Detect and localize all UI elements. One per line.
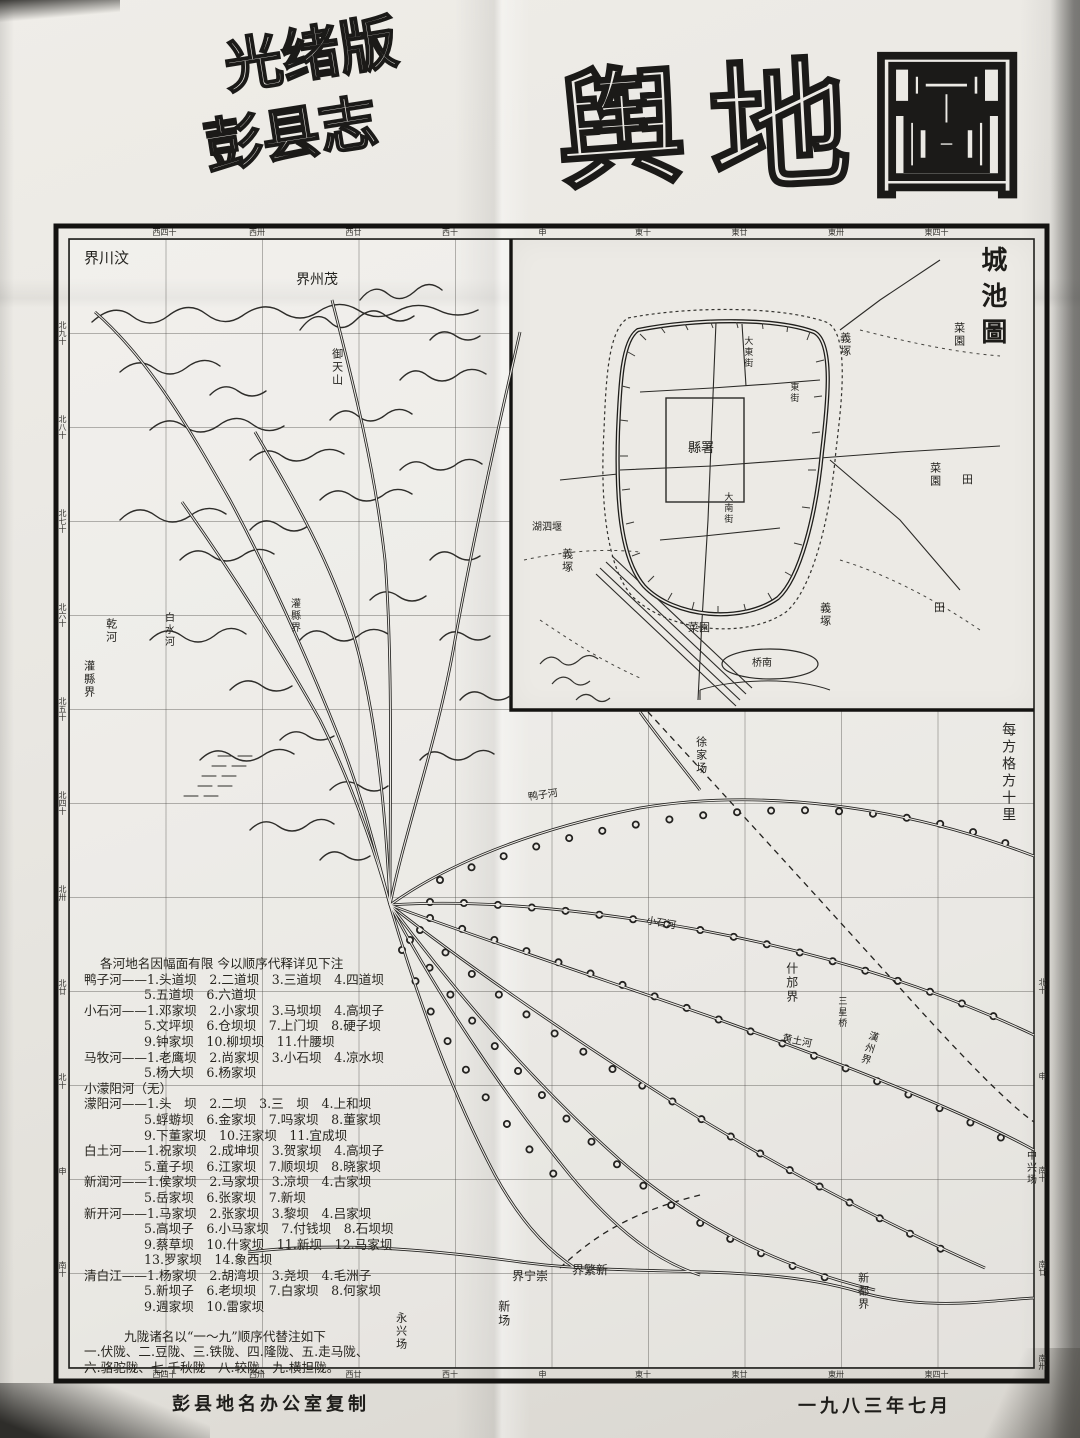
inset-label-dadongjie: 大東街 (742, 336, 752, 369)
river-name-legend: 各河地名因幅面有限 今以顺序代释详见下注 鸭子河——1.头道坝 2.二道坝 3.… (84, 956, 444, 1375)
grid-tick-label: 申 (1037, 1072, 1048, 1080)
settlement-dots (402, 810, 1020, 1285)
label-xinfan-border: 界繁新 (572, 1264, 608, 1278)
label-wenchuan-border: 界川汶 (84, 250, 129, 267)
inset-label-yamen: 縣署 (688, 442, 714, 457)
legend-line: 濛阳河——1.头 坝 2.二坝 3.三 坝 4.上和坝 (84, 1096, 444, 1112)
inset-label-dongjie: 東街 (788, 382, 798, 404)
grid-tick-label: 南十 (1037, 1166, 1048, 1182)
grid-tick-label: 西廿 (346, 227, 362, 238)
footer-publisher: 彭县地名办公室复制 (172, 1390, 370, 1416)
grid-tick-label: 東四十 (925, 1369, 949, 1380)
legend-line: 清白江——1.杨家坝 2.胡湾坝 3.尧坝 4.毛洲子 (84, 1268, 444, 1284)
inset-label-husiyan: 湖泗堰 (532, 522, 562, 534)
legend-line: 鸭子河——1.头道坝 2.二道坝 3.三道坝 4.四道坝 (84, 972, 444, 988)
legend-line: 9.下董家坝 10.汪家坝 11.宜成坝 (84, 1128, 444, 1144)
label-baishuihe: 白水河 (162, 612, 174, 648)
label-shifang-border: 什邡界 (784, 962, 798, 1004)
grid-tick-label: 北卅 (57, 885, 68, 901)
label-guanxian-border-1: 灌縣界 (82, 660, 95, 699)
label-xinchang: 新场 (496, 1300, 510, 1328)
grid-tick-label: 西四十 (153, 227, 177, 238)
grid-tick-label: 北十 (57, 1073, 68, 1089)
inset-label-yizhong-1: 義塚 (838, 332, 851, 358)
legend-line: 5.蜉蝣坝 6.金家坝 7.吗家坝 8.董家坝 (84, 1112, 444, 1128)
label-chongning-border: 界宁崇 (512, 1270, 548, 1284)
inset-frame (511, 239, 1034, 710)
legend-nine-long-line: 六.骆驼陇、七.千秋陇 八.较陇、九.横担陇。 (84, 1360, 444, 1376)
inset-label-caiyuan-2: 菜園 (928, 462, 941, 488)
inset-label-caiyuan-3: 菜園 (688, 622, 710, 635)
inset-label-tian-2: 田 (934, 602, 945, 615)
grid-tick-label: 西卅 (249, 227, 265, 238)
map-scale-note: 每方格方十里 (1000, 722, 1016, 824)
legend-line: 小石河——1.邓家坝 2.小家坝 3.马坝坝 4.高坝子 (84, 1003, 444, 1019)
legend-line: 9.钟家坝 10.柳坝坝 11.什腰坝 (84, 1034, 444, 1050)
grid-tick-label: 北九十 (57, 321, 68, 345)
grid-tick-label: 南卅 (1037, 1354, 1048, 1370)
label-qianhe: 乾河 (104, 618, 117, 644)
legend-line: 5.童子坝 6.江家坝 7.顺坝坝 8.晓家坝 (84, 1159, 444, 1175)
inset-label-tian-1: 田 (962, 474, 973, 487)
legend-line: 5.新坝子 6.老坝坝 7.白家坝 8.何家坝 (84, 1283, 444, 1299)
grid-tick-label: 申 (539, 1369, 547, 1380)
legend-line: 马牧河——1.老鹰坝 2.尚家坝 3.小石坝 4.凉水坝 (84, 1050, 444, 1066)
inset-label-dananjie: 大南街 (722, 492, 732, 525)
legend-line: 5.高坝子 6.小马家坝 7.付钱坝 8.石坝坝 (84, 1221, 444, 1237)
inset-label-yizhong-3: 義塚 (560, 548, 573, 574)
legend-header: 各河地名因幅面有限 今以顺序代释详见下注 (84, 956, 444, 972)
grid-tick-label: 北五十 (57, 697, 68, 721)
label-maozhou-border: 界州茂 (296, 272, 338, 288)
label-xindu-border: 新都界 (856, 1272, 869, 1311)
legend-line: 小濛阳河（无） (84, 1081, 444, 1097)
legend-line: 9.蔡草坝 10.什家坝 11.新坝 12.马家坝 (84, 1237, 444, 1253)
legend-nine-long-line: 一.伏陇、二.豆陇、三.铁陇、四.隆陇、五.走马陇、 (84, 1344, 444, 1360)
inset-label-nanqiao: 桥南 (752, 658, 772, 670)
grid-tick-label: 申 (539, 227, 547, 238)
legend-line: 13.罗家坝 14.象西坝 (84, 1252, 444, 1268)
inset-label-caiyuan-1: 菜園 (952, 322, 965, 348)
legend-nine-long-header: 九陇诸名以“一～九”顺序代替注如下 (84, 1329, 444, 1345)
label-sanxingqiao: 三星桥 (836, 996, 846, 1029)
grid-tick-label: 北四十 (57, 791, 68, 815)
inset-title: 城池圖 (976, 246, 1006, 354)
grid-tick-label: 東四十 (925, 227, 949, 238)
grid-tick-label: 申 (57, 1167, 68, 1175)
legend-line: 5.杨大坝 6.杨家坝 (84, 1065, 444, 1081)
label-yutianshan: 御天山 (330, 348, 343, 387)
grid-tick-label: 東十 (635, 227, 651, 238)
legend-line: 9.週家坝 10.雷家坝 (84, 1299, 444, 1315)
label-guanxian-border-2: 灌縣界 (288, 598, 300, 634)
legend-line: 新开河——1.马家坝 2.张家坝 3.黎坝 4.吕家坝 (84, 1206, 444, 1222)
scanned-map-page: 光绪版 彭县志 舆 地 圖 (0, 0, 1080, 1438)
grid-tick-label: 西十 (442, 227, 458, 238)
grid-tick-label: 北八十 (57, 415, 68, 439)
label-xujiachang: 徐家场 (694, 736, 707, 775)
grid-tick-label: 南十 (57, 1261, 68, 1277)
grid-tick-label: 東廿 (732, 1369, 748, 1380)
footer-date: 一九八三年七月 (798, 1392, 952, 1418)
legend-line: 5.五道坝 6.六道坝 (84, 987, 444, 1003)
legend-line: 新润河——1.侯家坝 2.马家坝 3.凉坝 4.古家坝 (84, 1174, 444, 1190)
grid-tick-label: 東廿 (732, 227, 748, 238)
inset-label-yizhong-2: 義塚 (818, 602, 831, 628)
label-zhongxingchang: 中兴场 (1024, 1150, 1036, 1186)
grid-tick-label: 北廿 (57, 979, 68, 995)
mountain-ridges (92, 284, 510, 860)
grid-tick-label: 西十 (442, 1369, 458, 1380)
grid-tick-label: 北六十 (57, 603, 68, 627)
grid-tick-label: 東卅 (828, 1369, 844, 1380)
legend-line: 白土河——1.祝家坝 2.成坤坝 3.贺家坝 4.高坝子 (84, 1143, 444, 1159)
grid-tick-label: 北七十 (57, 509, 68, 533)
grid-tick-label: 東十 (635, 1369, 651, 1380)
legend-line: 5.岳家坝 6.张家坝 7.新坝 (84, 1190, 444, 1206)
legend-line: 5.文坪坝 6.仓坝坝 7.上门坝 8.硬子坝 (84, 1018, 444, 1034)
grid-tick-label: 北十 (1037, 978, 1048, 994)
grid-tick-label: 南廿 (1037, 1260, 1048, 1276)
grid-tick-label: 東卅 (828, 227, 844, 238)
